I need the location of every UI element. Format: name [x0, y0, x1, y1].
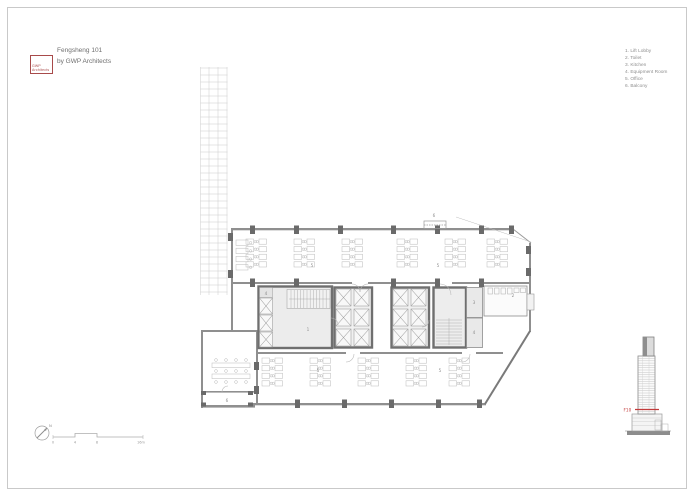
- label-lift-lobby: 1: [307, 327, 310, 332]
- section-ground: [627, 431, 670, 435]
- section-podium: [632, 414, 662, 431]
- north-label: N: [49, 423, 52, 428]
- label-equipment: 4: [473, 330, 476, 335]
- label-office: 5: [437, 263, 440, 268]
- scale-tick-8: 8: [96, 441, 99, 445]
- label-balcony: 6: [433, 213, 436, 218]
- label-balcony: 6: [226, 398, 229, 403]
- meeting-table: [212, 363, 250, 368]
- north-arrow: N: [35, 423, 52, 440]
- fan-canopy-arcs: [204, 0, 581, 428]
- fan-canopy-rays: [204, 0, 588, 433]
- label-office: 5: [317, 368, 320, 373]
- scale-tick-4: 4: [74, 441, 77, 445]
- floor-plan: 5 5 5 5 1 2 3 4 4 6 6: [201, 213, 534, 408]
- drawing-canvas: 5 5 5 5 1 2 3 4 4 6 6 F10: [0, 0, 694, 496]
- label-office: 5: [311, 263, 314, 268]
- scale-bar: 0 4 8 16m: [52, 434, 146, 445]
- meeting-table: [212, 374, 250, 379]
- floor-marker-label: F10: [624, 408, 632, 413]
- scale-tick-0: 0: [52, 441, 55, 445]
- meeting-chairs: [215, 359, 248, 384]
- section-drawing: F10: [624, 337, 672, 435]
- curtain-wall-strip: [201, 67, 228, 295]
- drawing-sheet: GWP Architects Fengsheng 101 by GWP Arch…: [0, 0, 694, 496]
- label-equipment: 4: [265, 291, 268, 296]
- scale-tick-16m: 16m: [137, 441, 146, 445]
- diagonal-east-wall: [485, 331, 530, 404]
- label-kitchen: 3: [473, 300, 476, 305]
- section-tower: [638, 356, 655, 414]
- label-toilet: 2: [512, 293, 515, 298]
- label-office: 5: [439, 368, 442, 373]
